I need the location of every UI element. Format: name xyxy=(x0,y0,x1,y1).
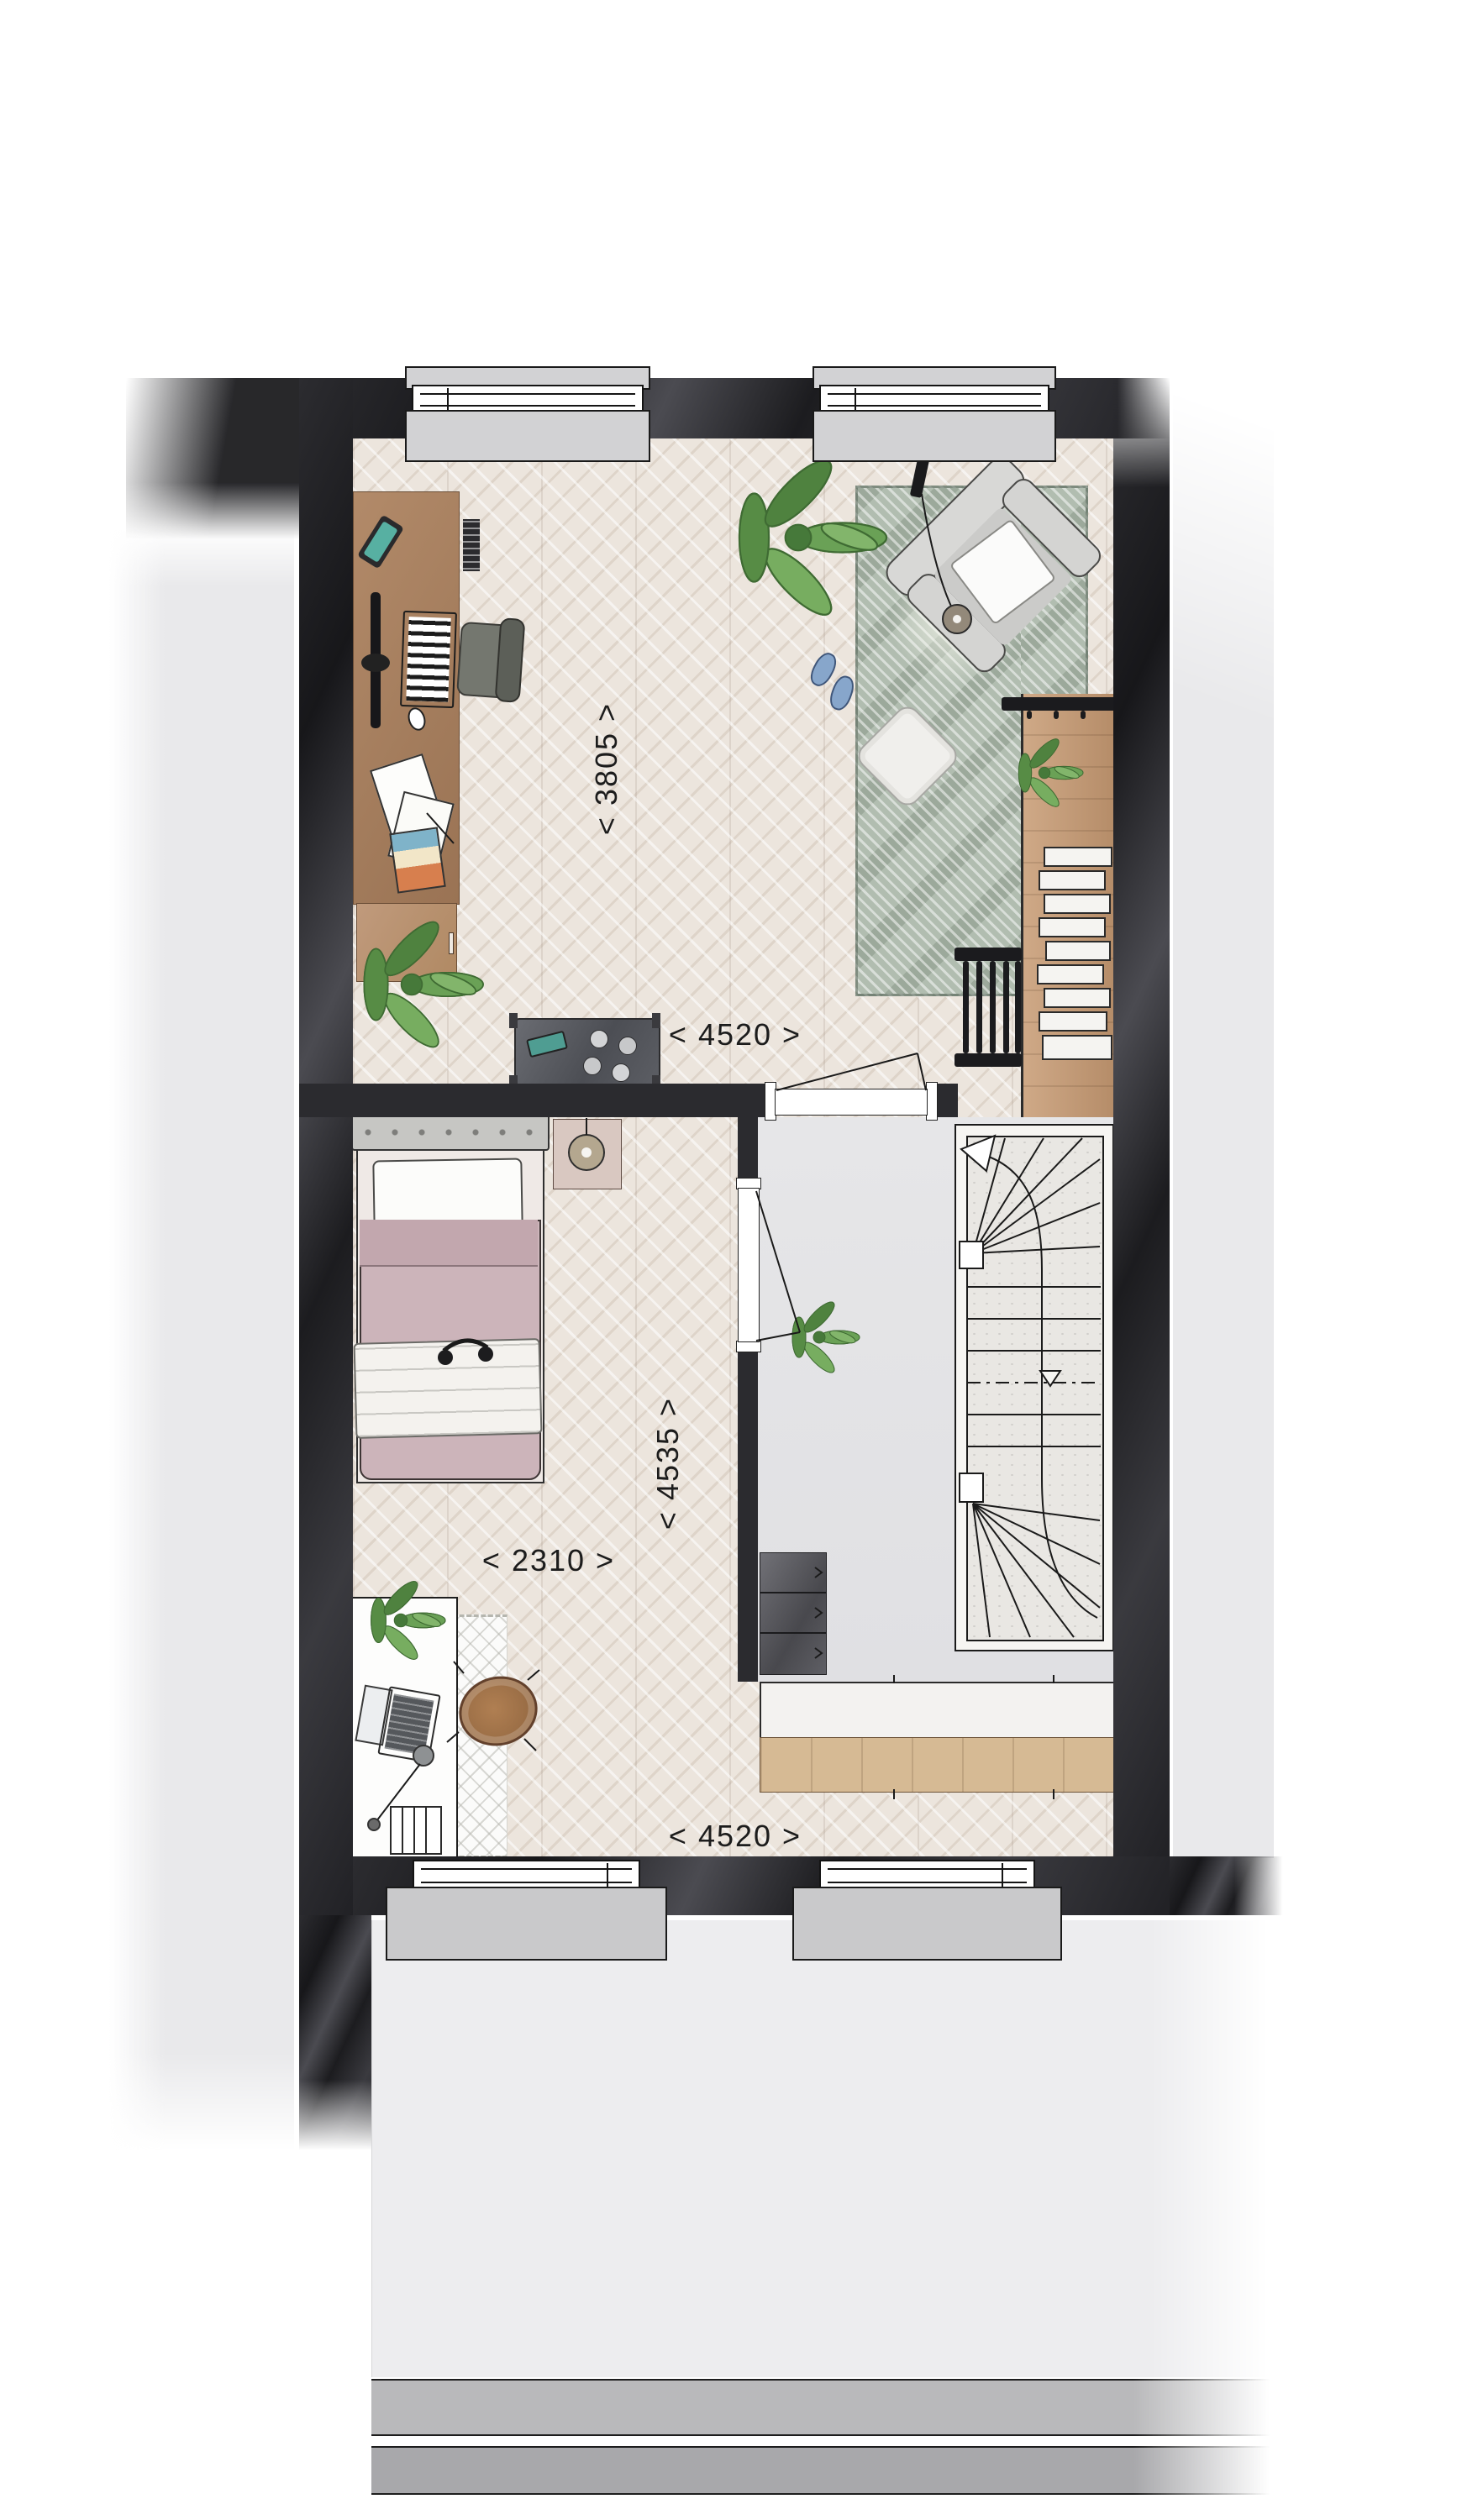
dimension-label-2310: < 2310 > xyxy=(448,1544,649,1578)
dimension-label-4520-top: < 4520 > xyxy=(634,1018,836,1052)
floor-plan-canvas: < 3805 > < 4520 > < 4535 > < 2310 > < 45… xyxy=(0,0,1462,2520)
dimension-label-4535: < 4535 > xyxy=(651,1362,685,1564)
annotation-lines xyxy=(0,0,1462,2520)
dimension-label-3805: < 3805 > xyxy=(590,668,623,869)
dimension-label-4520-bottom: < 4520 > xyxy=(634,1819,836,1853)
